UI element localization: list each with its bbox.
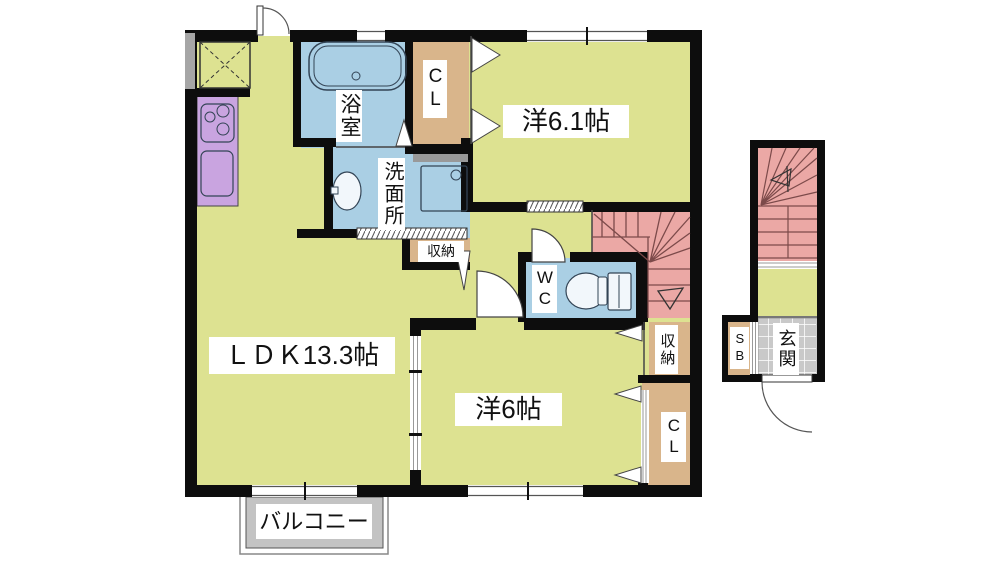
entry-door-swing	[762, 382, 812, 432]
annex-hall	[758, 269, 817, 318]
label-bathroom: 浴室	[336, 90, 362, 142]
kitchen-door-leaf	[257, 6, 263, 35]
window-top-bathroom	[357, 30, 385, 42]
label-storage-hall: 収納	[418, 241, 464, 262]
label-closet-lower: CL	[661, 412, 686, 462]
folding-door-closet-lower	[641, 390, 649, 483]
label-shoe-box: SB	[730, 327, 749, 369]
floor-plan-page: 浴室 洗面所 CL 洋6.1帖 収納 WC 収納 CL 洋6帖 ＬＤＫ13.3帖…	[0, 0, 1000, 562]
label-western-room-upper: 洋6.1帖	[503, 105, 629, 138]
label-washroom: 洗面所	[378, 158, 405, 230]
sliding-partition-ldk	[409, 336, 422, 470]
sliding-door-western-upper	[527, 201, 583, 212]
label-ldk: ＬＤＫ13.3帖	[209, 337, 395, 374]
label-wc: WC	[532, 265, 557, 313]
kitchen-door-swing	[263, 8, 289, 34]
label-western-room-lower: 洋6帖	[455, 393, 562, 426]
label-balcony: バルコニー	[256, 504, 372, 539]
toilet	[566, 273, 631, 310]
annex	[722, 140, 825, 432]
entry-door-leaf	[762, 375, 812, 382]
floor-plan-drawing	[0, 0, 1000, 562]
label-storage-stairs: 収納	[655, 325, 678, 374]
sliding-door-washroom	[357, 228, 467, 239]
label-closet-upper: CL	[423, 60, 447, 118]
wall-concrete-strip	[413, 154, 468, 162]
pipe-space	[185, 33, 195, 89]
label-entrance: 玄関	[773, 323, 799, 375]
